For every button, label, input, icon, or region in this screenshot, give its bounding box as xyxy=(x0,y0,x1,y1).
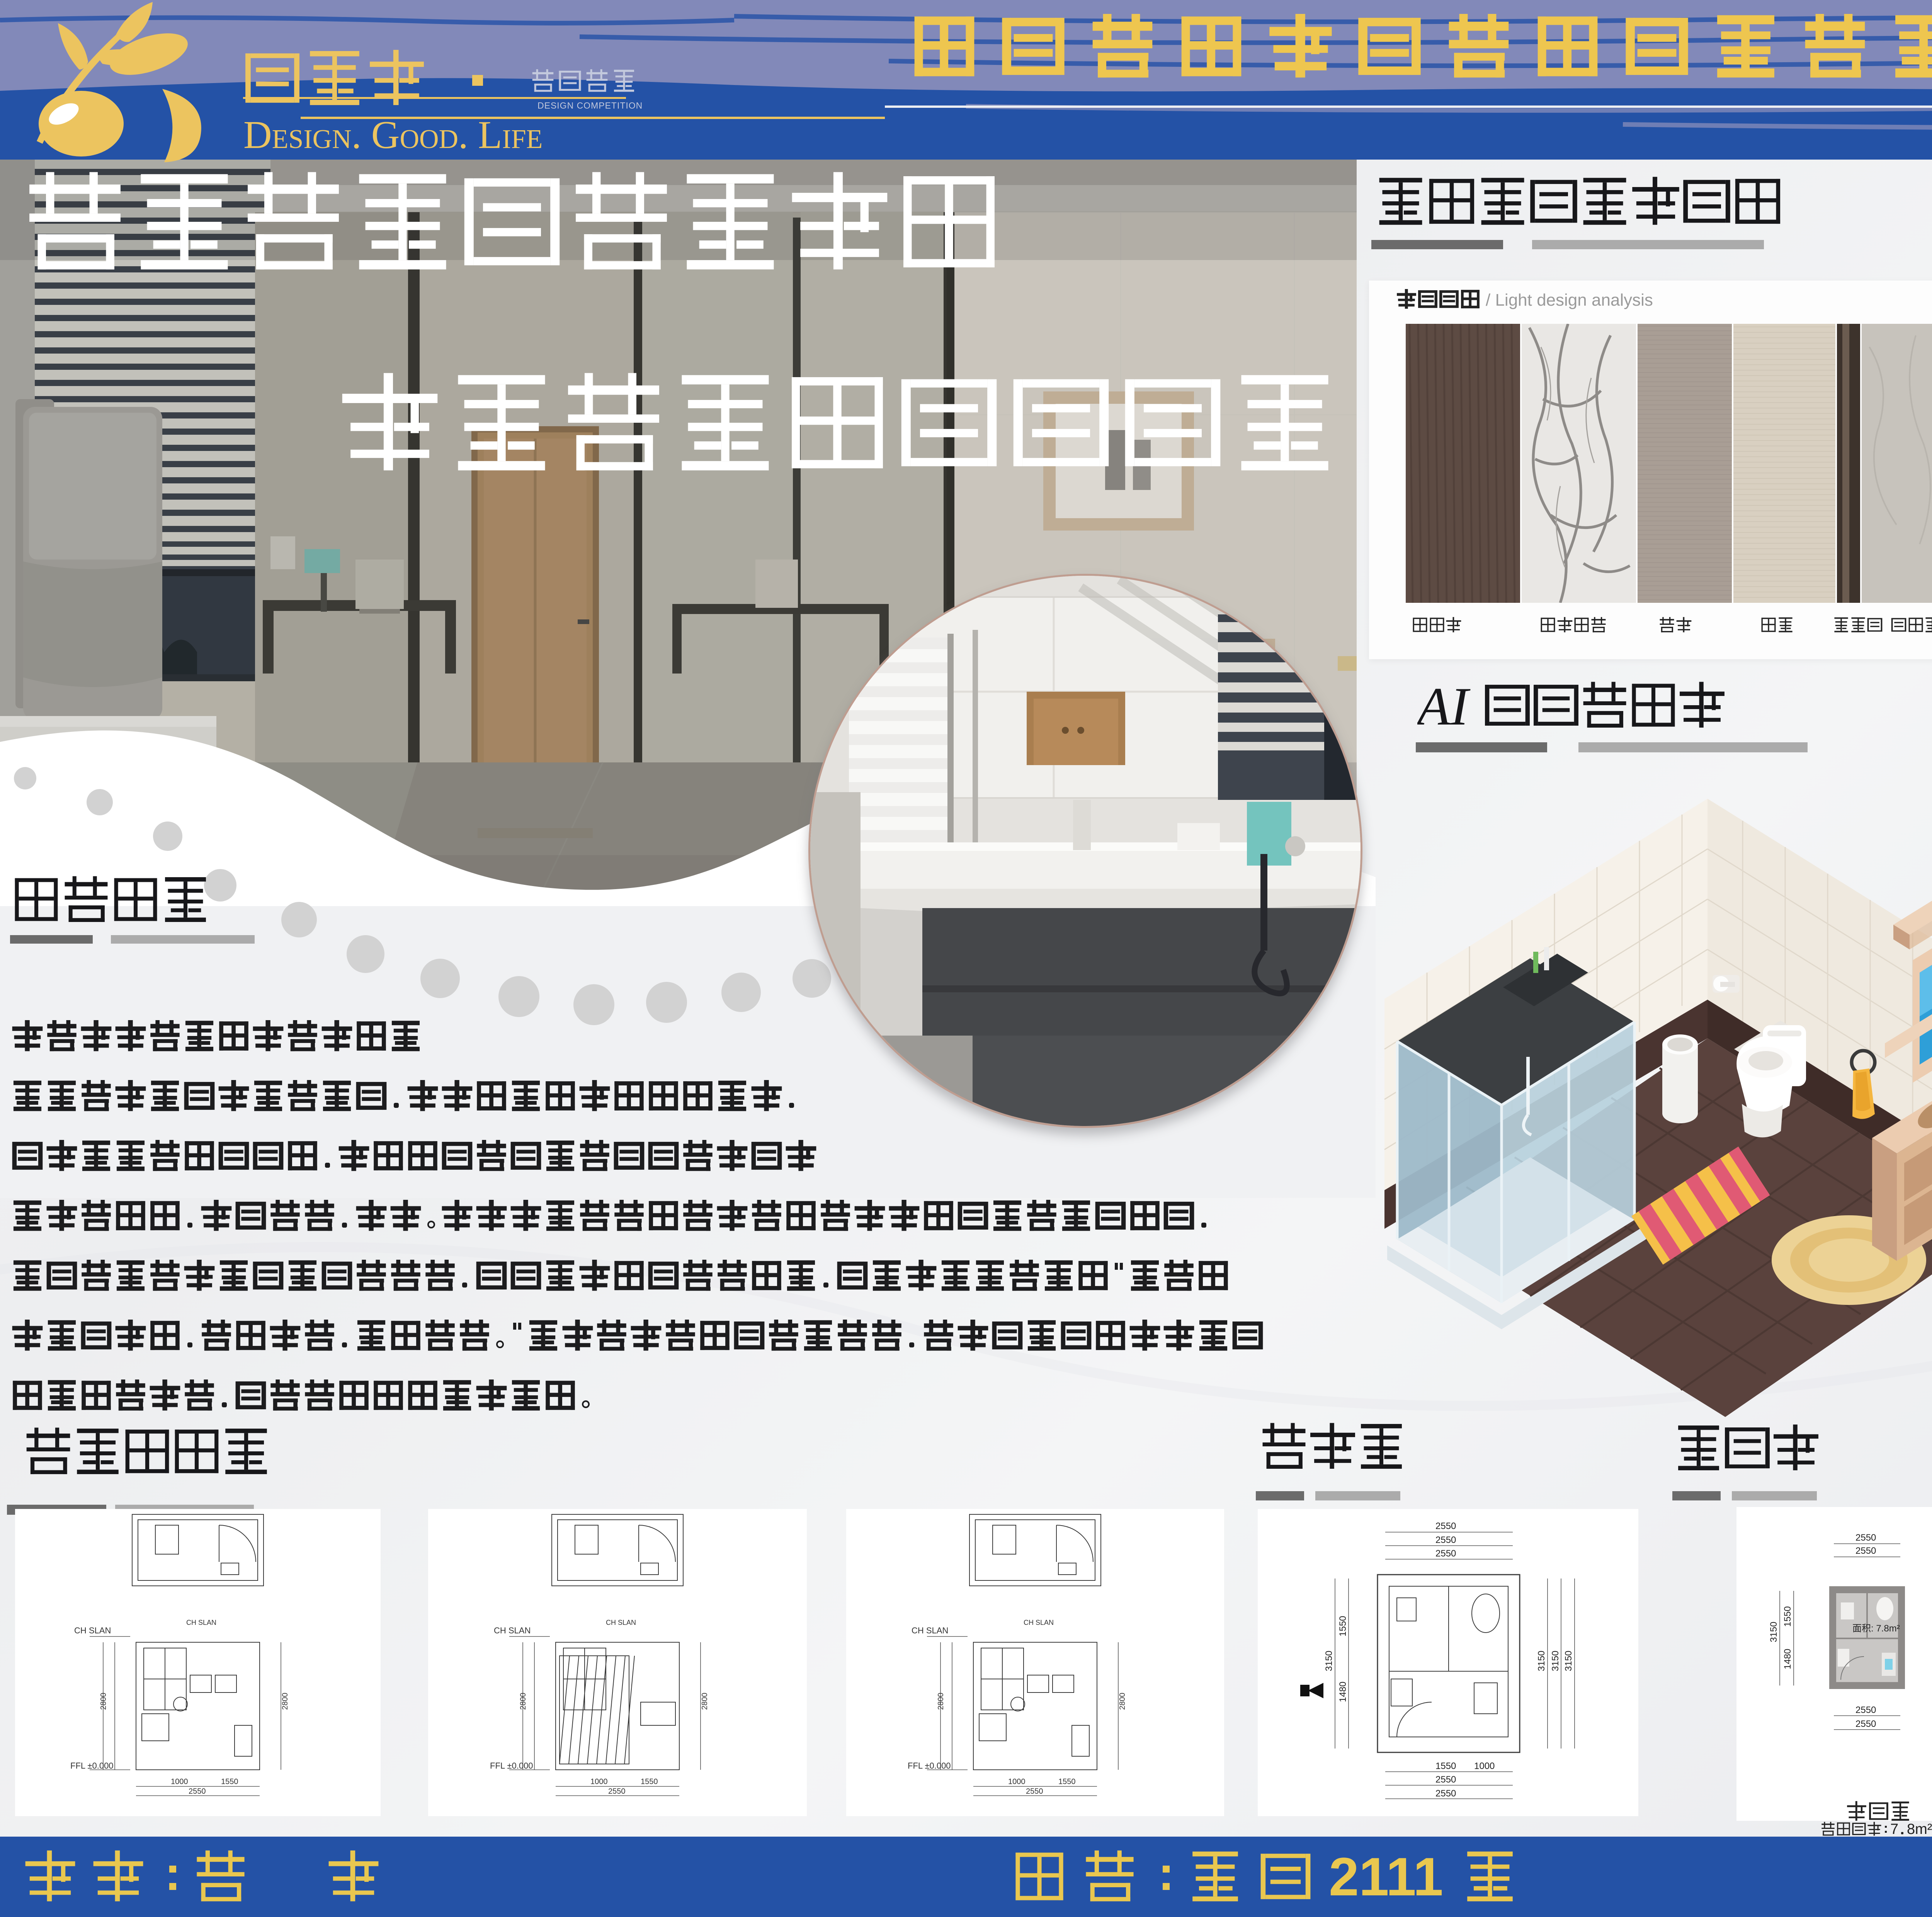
svg-text:1550: 1550 xyxy=(1782,1606,1793,1627)
svg-text:3150: 3150 xyxy=(1563,1651,1574,1671)
svg-text:7: 7 xyxy=(1890,1822,1898,1837)
svg-text:2800: 2800 xyxy=(99,1693,108,1710)
svg-text:3150: 3150 xyxy=(1536,1651,1547,1671)
svg-text:1550: 1550 xyxy=(1435,1761,1456,1771)
svg-text:CH SLAN: CH SLAN xyxy=(912,1626,948,1635)
svg-text:1550: 1550 xyxy=(221,1778,238,1786)
svg-text:8m²: 8m² xyxy=(1907,1822,1932,1837)
svg-text:2550: 2550 xyxy=(1435,1788,1456,1799)
svg-text:2550: 2550 xyxy=(1855,1546,1876,1556)
svg-text:FFL ±0.000: FFL ±0.000 xyxy=(490,1761,533,1771)
svg-text:2550: 2550 xyxy=(1855,1533,1876,1543)
svg-text:1550: 1550 xyxy=(1338,1616,1348,1636)
svg-text:2550: 2550 xyxy=(1435,1521,1456,1531)
svg-text:CH SLAN: CH SLAN xyxy=(1024,1619,1054,1626)
svg-text:2550: 2550 xyxy=(608,1787,626,1796)
svg-text:2800: 2800 xyxy=(1118,1693,1127,1710)
svg-text:2800: 2800 xyxy=(701,1693,709,1710)
svg-text:1480: 1480 xyxy=(1782,1649,1793,1669)
svg-text:1550: 1550 xyxy=(641,1778,658,1786)
svg-text:CH SLAN: CH SLAN xyxy=(494,1626,531,1635)
svg-text:2550: 2550 xyxy=(1435,1548,1456,1559)
svg-text:2550: 2550 xyxy=(189,1787,206,1796)
svg-text:1000: 1000 xyxy=(1008,1778,1026,1786)
svg-text:面积: 7.8m²: 面积: 7.8m² xyxy=(1852,1623,1900,1634)
svg-text:1000: 1000 xyxy=(1474,1761,1495,1771)
svg-text:2800: 2800 xyxy=(519,1693,527,1710)
svg-text:AI: AI xyxy=(1417,678,1471,737)
svg-text:2550: 2550 xyxy=(1435,1774,1456,1785)
svg-text:2550: 2550 xyxy=(1855,1719,1876,1729)
svg-text:2111: 2111 xyxy=(1329,1849,1443,1907)
svg-text:2550: 2550 xyxy=(1435,1535,1456,1545)
svg-text:2550: 2550 xyxy=(1026,1787,1043,1796)
svg-text:CH SLAN: CH SLAN xyxy=(606,1619,636,1626)
svg-text:3150: 3150 xyxy=(1324,1651,1334,1671)
svg-text:1000: 1000 xyxy=(590,1778,608,1786)
svg-text:FFL ±0.000: FFL ±0.000 xyxy=(908,1761,951,1771)
svg-text:3150: 3150 xyxy=(1769,1622,1779,1642)
svg-text:2800: 2800 xyxy=(281,1693,289,1710)
svg-text:DESIGN. GOOD. LIFE: DESIGN. GOOD. LIFE xyxy=(243,113,543,155)
svg-text:1000: 1000 xyxy=(171,1778,188,1786)
svg-text:2800: 2800 xyxy=(937,1693,945,1710)
svg-text:2550: 2550 xyxy=(1855,1705,1876,1715)
svg-text:CH SLAN: CH SLAN xyxy=(186,1619,216,1626)
svg-text:CH SLAN: CH SLAN xyxy=(74,1626,111,1635)
svg-text:1550: 1550 xyxy=(1058,1778,1076,1786)
svg-text:FFL ±0.000: FFL ±0.000 xyxy=(70,1761,114,1771)
svg-text:1480: 1480 xyxy=(1338,1682,1348,1702)
svg-text:3150: 3150 xyxy=(1550,1651,1561,1671)
